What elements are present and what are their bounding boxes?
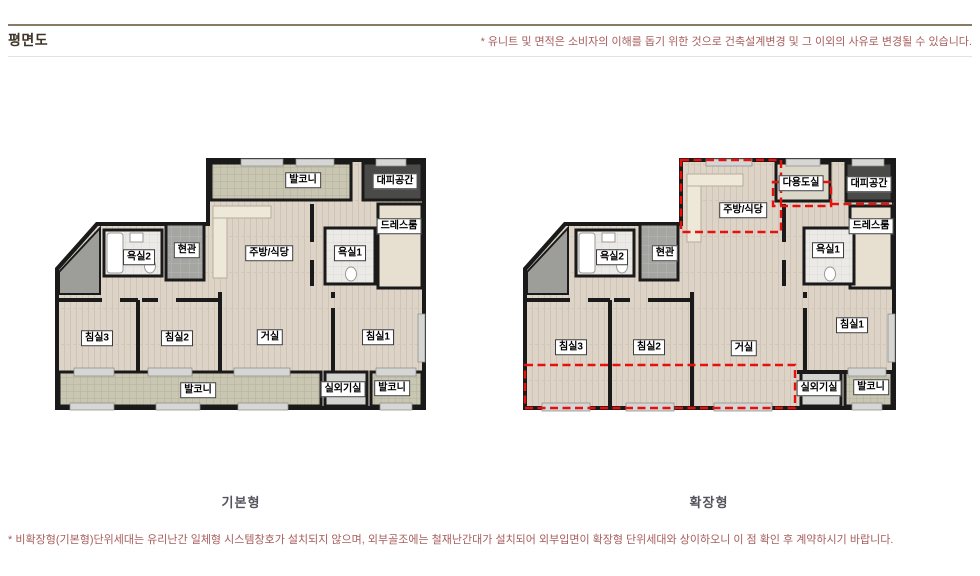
floor-plan-extended-drawing <box>514 146 904 418</box>
room-label-bathroom2: 욕실2 <box>596 249 628 265</box>
room-label-outdoor-unit: 실외기실 <box>797 380 842 396</box>
room-label-bedroom2: 침실2 <box>161 330 193 346</box>
header-sub-rule <box>8 56 972 57</box>
room-label-utility: 다용도실 <box>779 175 824 191</box>
header-top-rule <box>8 24 972 26</box>
room-label-dressroom: 드레스룸 <box>377 218 422 234</box>
room-label-bedroom3: 침실3 <box>555 339 587 355</box>
contract-disclaimer-note: * 비확장형(기본형)단위세대는 유리난간 일체형 시스템창호가 설치되지 않으… <box>8 531 893 547</box>
room-label-bathroom2: 욕실2 <box>123 249 155 265</box>
room-label-entrance: 현관 <box>174 242 200 258</box>
room-label-bedroom2: 침실2 <box>633 339 665 355</box>
room-label-kitchen: 주방/식당 <box>719 202 767 218</box>
room-label-balcony-bottom: 발코니 <box>180 382 216 398</box>
page-title: 평면도 <box>8 30 48 50</box>
room-label-balcony-right: 발코니 <box>374 380 410 396</box>
room-label-dressroom: 드레스룸 <box>849 218 894 234</box>
unit-disclaimer-note: * 유니트 및 면적은 소비자의 이해를 돕기 위한 것으로 건축설계변경 및 … <box>481 33 972 49</box>
room-label-bathroom1: 욕실1 <box>812 242 844 258</box>
room-label-evacuation: 대피공간 <box>373 173 418 189</box>
room-label-bedroom3: 침실3 <box>81 330 113 346</box>
room-label-bedroom1: 침실1 <box>836 317 868 333</box>
room-label-kitchen: 주방/식당 <box>245 245 293 261</box>
room-label-balcony-right: 발코니 <box>853 379 889 395</box>
room-label-living: 거실 <box>257 329 283 345</box>
room-label-living: 거실 <box>731 340 757 356</box>
room-label-bathroom1: 욕실1 <box>334 245 366 261</box>
caption-basic-type: 기본형 <box>46 492 436 511</box>
caption-extended-type: 확장형 <box>514 492 904 511</box>
room-label-bedroom1: 침실1 <box>362 329 394 345</box>
floor-plan-extended: 주방/식당 다용도실 대피공간 드레스룸 욕실1 욕실2 현관 침실3 침실2 … <box>514 146 904 418</box>
room-label-outdoor-unit: 실외기실 <box>321 381 366 397</box>
floor-plan-basic: 발코니 대피공간 드레스룸 욕실2 현관 주방/식당 욕실1 침실3 침실2 거… <box>46 146 436 418</box>
room-label-balcony-top: 발코니 <box>285 172 321 188</box>
room-label-entrance: 현관 <box>652 245 678 261</box>
floor-plan-page: { "header": { "title": "평면도", "note": "*… <box>0 0 980 576</box>
room-label-evacuation: 대피공간 <box>847 176 892 192</box>
